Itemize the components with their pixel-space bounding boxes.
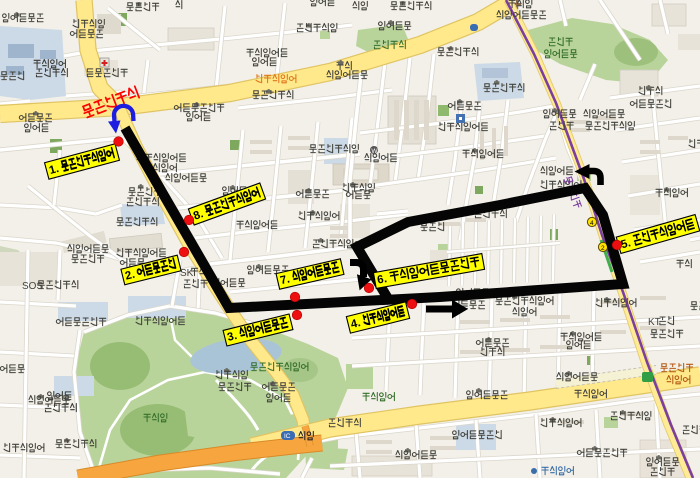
svg-text:KT: KT bbox=[648, 317, 661, 328]
svg-text:4: 4 bbox=[590, 220, 594, 227]
svg-text:W: W bbox=[371, 148, 378, 155]
svg-text:2: 2 bbox=[601, 245, 605, 252]
svg-text:IC: IC bbox=[284, 433, 291, 440]
svg-text:SOS: SOS bbox=[22, 281, 43, 292]
svg-text:SK: SK bbox=[180, 268, 194, 279]
svg-text:6.: 6. bbox=[376, 273, 388, 286]
